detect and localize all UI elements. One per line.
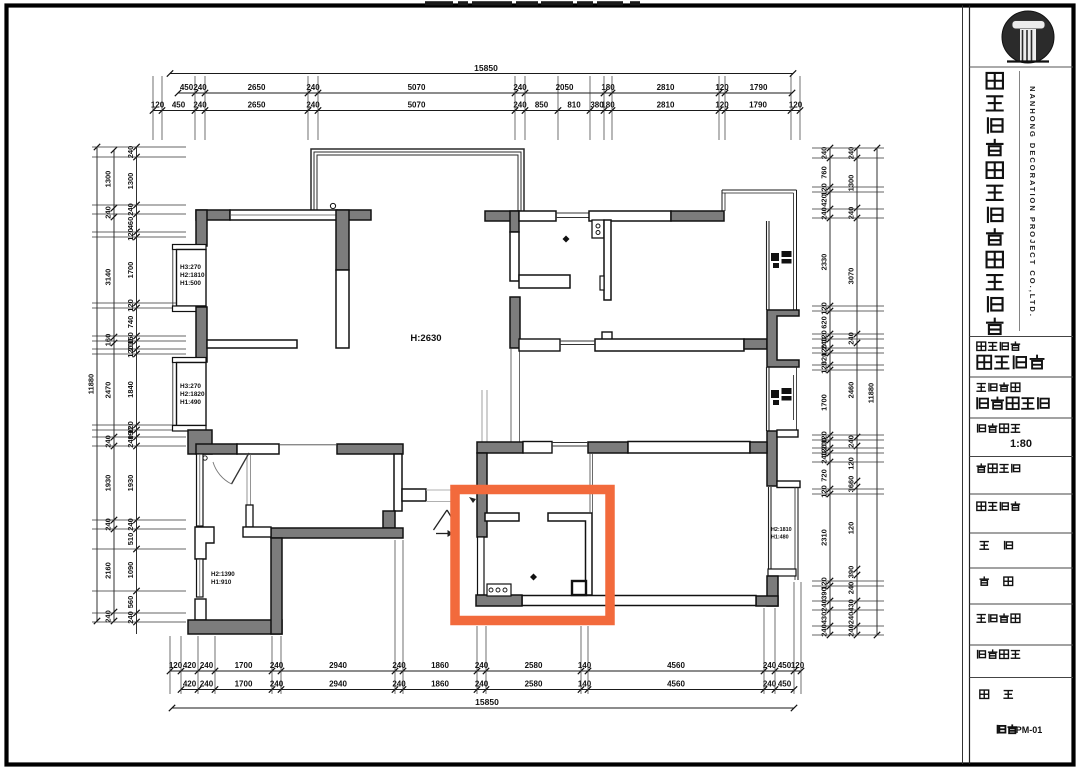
svg-text:240: 240 — [200, 661, 214, 670]
svg-text:140: 140 — [578, 680, 592, 689]
svg-text:240: 240 — [392, 661, 406, 670]
svg-text:560: 560 — [126, 596, 135, 609]
svg-text:120: 120 — [126, 299, 135, 312]
svg-text:4560: 4560 — [667, 661, 685, 670]
svg-text:620: 620 — [820, 316, 829, 329]
svg-text:720: 720 — [820, 469, 829, 482]
svg-text:180: 180 — [601, 101, 615, 110]
svg-text:240: 240 — [126, 146, 135, 159]
svg-text:240: 240 — [200, 680, 214, 689]
svg-text:510: 510 — [126, 533, 135, 546]
svg-text:15850: 15850 — [475, 697, 499, 707]
svg-text:2810: 2810 — [657, 83, 675, 92]
svg-text:120: 120 — [820, 361, 829, 374]
svg-text:1700: 1700 — [235, 680, 253, 689]
svg-text:3070: 3070 — [847, 268, 856, 285]
svg-text:460: 460 — [126, 217, 135, 230]
svg-text:240: 240 — [847, 612, 856, 625]
svg-text:740: 740 — [126, 316, 135, 329]
svg-text:4560: 4560 — [667, 680, 685, 689]
svg-text:1300: 1300 — [126, 173, 135, 190]
svg-text:120: 120 — [715, 101, 729, 110]
svg-text:H2:1810: H2:1810 — [180, 272, 205, 279]
svg-text:H2:1810: H2:1810 — [771, 527, 792, 533]
svg-text:2650: 2650 — [248, 83, 266, 92]
svg-text:11880: 11880 — [867, 383, 876, 403]
svg-text:1700: 1700 — [820, 394, 829, 411]
svg-text:2160: 2160 — [104, 562, 113, 579]
svg-text:140: 140 — [578, 661, 592, 670]
svg-text:850: 850 — [535, 101, 549, 110]
svg-text:120: 120 — [169, 661, 183, 670]
svg-text:2310: 2310 — [820, 529, 829, 546]
svg-text:420: 420 — [183, 661, 197, 670]
svg-text:PM-01: PM-01 — [1016, 725, 1043, 735]
svg-text:120: 120 — [126, 345, 135, 358]
svg-text:1300: 1300 — [847, 175, 856, 192]
svg-text:120: 120 — [126, 228, 135, 241]
svg-text:2650: 2650 — [248, 101, 266, 110]
svg-text:2940: 2940 — [329, 680, 347, 689]
svg-text:1700: 1700 — [235, 661, 253, 670]
svg-text:120: 120 — [715, 83, 729, 92]
svg-text:390: 390 — [847, 566, 856, 579]
svg-text:5070: 5070 — [408, 83, 426, 92]
svg-text:2470: 2470 — [104, 382, 113, 399]
svg-text:120: 120 — [820, 485, 829, 498]
svg-text:180: 180 — [601, 83, 615, 92]
svg-text:1790: 1790 — [749, 101, 767, 110]
svg-text:1790: 1790 — [750, 83, 768, 92]
svg-text:H:2630: H:2630 — [410, 333, 441, 344]
svg-text:2460: 2460 — [847, 382, 856, 399]
svg-text:1930: 1930 — [126, 475, 135, 492]
svg-text:240: 240 — [763, 661, 777, 670]
svg-text:390: 390 — [820, 587, 829, 600]
svg-text:120: 120 — [820, 302, 829, 315]
svg-text:1300: 1300 — [104, 171, 113, 188]
svg-text:240: 240 — [847, 582, 856, 595]
svg-text:1860: 1860 — [431, 680, 449, 689]
svg-text:5070: 5070 — [408, 101, 426, 110]
svg-text:1:80: 1:80 — [1010, 438, 1032, 450]
svg-text:420: 420 — [820, 194, 829, 207]
svg-text:3660: 3660 — [847, 476, 856, 493]
svg-text:H3:270: H3:270 — [180, 383, 201, 390]
svg-text:H2:1820: H2:1820 — [180, 391, 205, 398]
svg-text:NANHONG DECORATION PROJECT CO.: NANHONG DECORATION PROJECT CO.,LTD. — [1028, 86, 1037, 318]
svg-text:11880: 11880 — [87, 374, 96, 394]
svg-text:120: 120 — [820, 183, 829, 196]
svg-text:2330: 2330 — [820, 254, 829, 271]
svg-text:420: 420 — [183, 680, 197, 689]
svg-text:120: 120 — [847, 522, 856, 535]
svg-text:450: 450 — [778, 661, 792, 670]
svg-text:H2:1390: H2:1390 — [211, 571, 235, 578]
svg-text:240: 240 — [392, 680, 406, 689]
svg-text:1840: 1840 — [126, 381, 135, 398]
svg-text:430: 430 — [820, 612, 829, 625]
svg-text:2580: 2580 — [525, 680, 543, 689]
svg-text:450: 450 — [778, 680, 792, 689]
svg-text:240: 240 — [820, 147, 829, 160]
svg-text:760: 760 — [820, 166, 829, 179]
svg-text:240: 240 — [847, 435, 856, 448]
svg-text:240: 240 — [763, 680, 777, 689]
svg-text:1090: 1090 — [126, 562, 135, 579]
svg-text:120: 120 — [847, 457, 856, 470]
svg-text:H3:270: H3:270 — [180, 264, 201, 271]
svg-text:240: 240 — [104, 610, 113, 623]
svg-text:2940: 2940 — [329, 661, 347, 670]
svg-text:240: 240 — [847, 207, 856, 220]
svg-text:1860: 1860 — [431, 661, 449, 670]
svg-text:3140: 3140 — [104, 269, 113, 286]
svg-text:2810: 2810 — [657, 101, 675, 110]
svg-text:240: 240 — [847, 147, 856, 160]
svg-text:810: 810 — [567, 101, 581, 110]
svg-text:H1:480: H1:480 — [771, 535, 789, 541]
svg-text:160: 160 — [104, 334, 113, 347]
svg-text:450: 450 — [172, 101, 186, 110]
svg-text:H1:500: H1:500 — [180, 280, 201, 287]
svg-text:240: 240 — [104, 206, 113, 219]
svg-text:120: 120 — [791, 661, 805, 670]
svg-text:450: 450 — [180, 83, 194, 92]
svg-text:2580: 2580 — [525, 661, 543, 670]
svg-text:H1:490: H1:490 — [180, 399, 201, 406]
svg-text:1700: 1700 — [126, 262, 135, 279]
svg-text:1930: 1930 — [104, 475, 113, 492]
svg-text:H1:910: H1:910 — [211, 579, 232, 586]
svg-text:15850: 15850 — [474, 63, 498, 73]
svg-text:2050: 2050 — [556, 83, 574, 92]
